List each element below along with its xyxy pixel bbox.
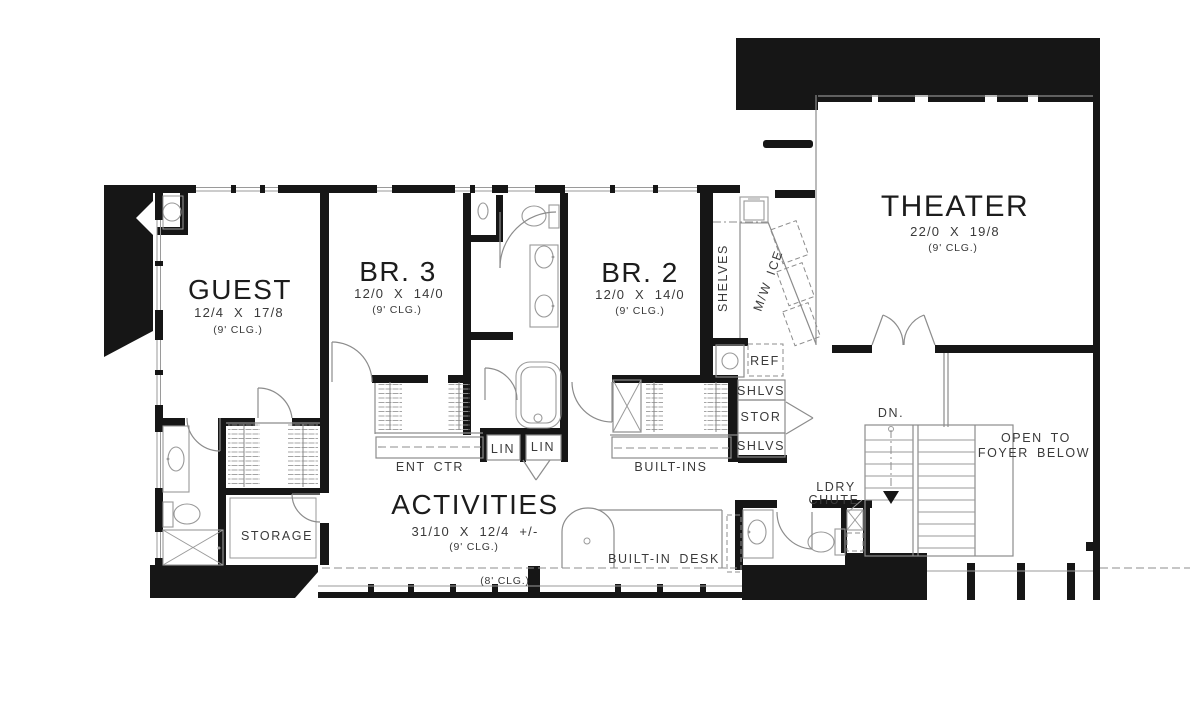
bath-sink2-icon (535, 295, 553, 317)
bathtub-icon (516, 362, 561, 428)
label-ent-ctr: ENT CTR (396, 460, 464, 474)
wetbar-sink-icon (740, 197, 768, 223)
bath-sink1-icon (535, 246, 553, 268)
room-label-activities: ACTIVITIES (391, 489, 558, 520)
bath-nook-sink-icon (478, 203, 488, 219)
label-open-to: OPEN TO (1001, 431, 1071, 445)
room-dims-guest: 12/4 X 17/8 (194, 305, 284, 320)
label-lin-left: LIN (491, 442, 515, 456)
label-foyer-below: FOYER BELOW (978, 446, 1090, 460)
room-dims-theater: 22/0 X 19/8 (910, 224, 1000, 239)
label-shlvs-upper: SHLVS (737, 384, 785, 398)
room-clg-br2: (9' CLG.) (615, 305, 664, 317)
guest-bath-door (187, 418, 220, 451)
room-clg-br3: (9' CLG.) (372, 304, 421, 316)
label-lin-right: LIN (531, 440, 555, 454)
label-shlvs-lower: SHLVS (737, 439, 785, 453)
bath-upper-door (500, 212, 556, 268)
room-clg-activities: (9' CLG.) (449, 541, 498, 553)
room-label-br2: BR. 2 (601, 257, 679, 288)
label-stor: STOR (741, 410, 782, 424)
guest-sink-icon (168, 447, 184, 471)
room-clg-guest: (9' CLG.) (213, 324, 262, 336)
floor-plan-page: GUEST 12/4 X 17/8 (9' CLG.) BR. 3 12/0 X… (0, 0, 1200, 706)
label-ldry: LDRY (816, 480, 856, 494)
hall-sink-icon (748, 520, 766, 544)
label-chute: CHUTE (808, 493, 859, 507)
guest-toilet-icon (174, 504, 200, 524)
label-built-ins: BUILT-INS (634, 460, 707, 474)
staircase (865, 425, 1013, 556)
label-storage: STORAGE (241, 529, 313, 543)
label-8ft-ceiling: (8' CLG.) (480, 575, 529, 587)
br2-door (572, 382, 612, 422)
floor-plan-drawing: GUEST 12/4 X 17/8 (9' CLG.) BR. 3 12/0 X… (0, 0, 1200, 706)
niche-fixture-icon (163, 203, 181, 221)
ref-nook-fixture-icon (722, 353, 738, 369)
label-dn: DN. (878, 406, 904, 420)
room-dims-br3: 12/0 X 14/0 (354, 286, 444, 301)
label-shelves: SHELVES (716, 244, 730, 312)
room-label-br3: BR. 3 (359, 256, 437, 287)
label-ref: REF (750, 354, 780, 368)
label-built-in-desk: BUILT-IN DESK (608, 552, 720, 566)
hall-bath-door (777, 512, 812, 549)
room-label-theater: THEATER (881, 190, 1029, 223)
room-dims-activities: 31/10 X 12/4 +/- (411, 524, 538, 539)
stair-treads (865, 440, 975, 548)
lin-door (523, 460, 550, 480)
guest-toilet-tank (163, 502, 173, 527)
partitions (163, 95, 1190, 572)
room-clg-theater: (9' CLG.) (928, 242, 977, 254)
guest-shower-icon (163, 530, 223, 565)
theater-double-door (872, 315, 935, 345)
stor-door (786, 402, 813, 434)
room-dims-br2: 12/0 X 14/0 (595, 287, 685, 302)
stair-down-arrow-icon (883, 491, 899, 504)
guest-door (258, 388, 292, 418)
bath-toilet-tank (549, 205, 559, 228)
hall-vanity (743, 510, 773, 558)
label-mw-ice: M/W ICE (751, 248, 786, 313)
room-label-guest: GUEST (188, 274, 292, 305)
br3-door (332, 342, 372, 382)
bath-lower-door (485, 368, 517, 400)
